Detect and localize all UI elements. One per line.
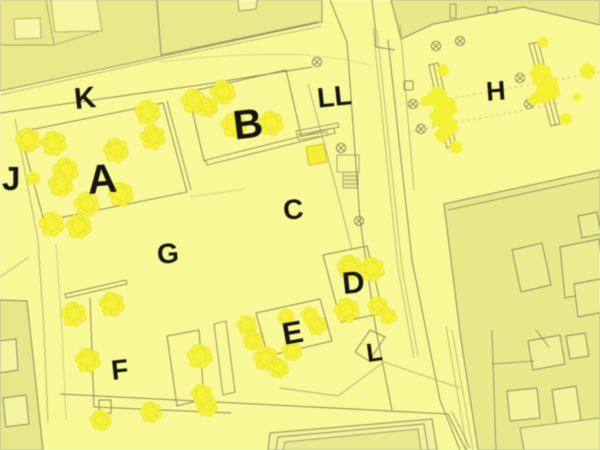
svg-text:C: C [282, 193, 305, 226]
svg-text:J: J [2, 160, 20, 197]
svg-text:G: G [156, 237, 180, 270]
svg-text:K: K [72, 81, 97, 116]
svg-text:H: H [485, 75, 507, 106]
svg-text:D: D [340, 264, 366, 301]
svg-text:B: B [230, 99, 265, 148]
svg-text:F: F [110, 353, 130, 386]
svg-text:LL: LL [316, 79, 353, 113]
svg-text:A: A [85, 155, 119, 203]
